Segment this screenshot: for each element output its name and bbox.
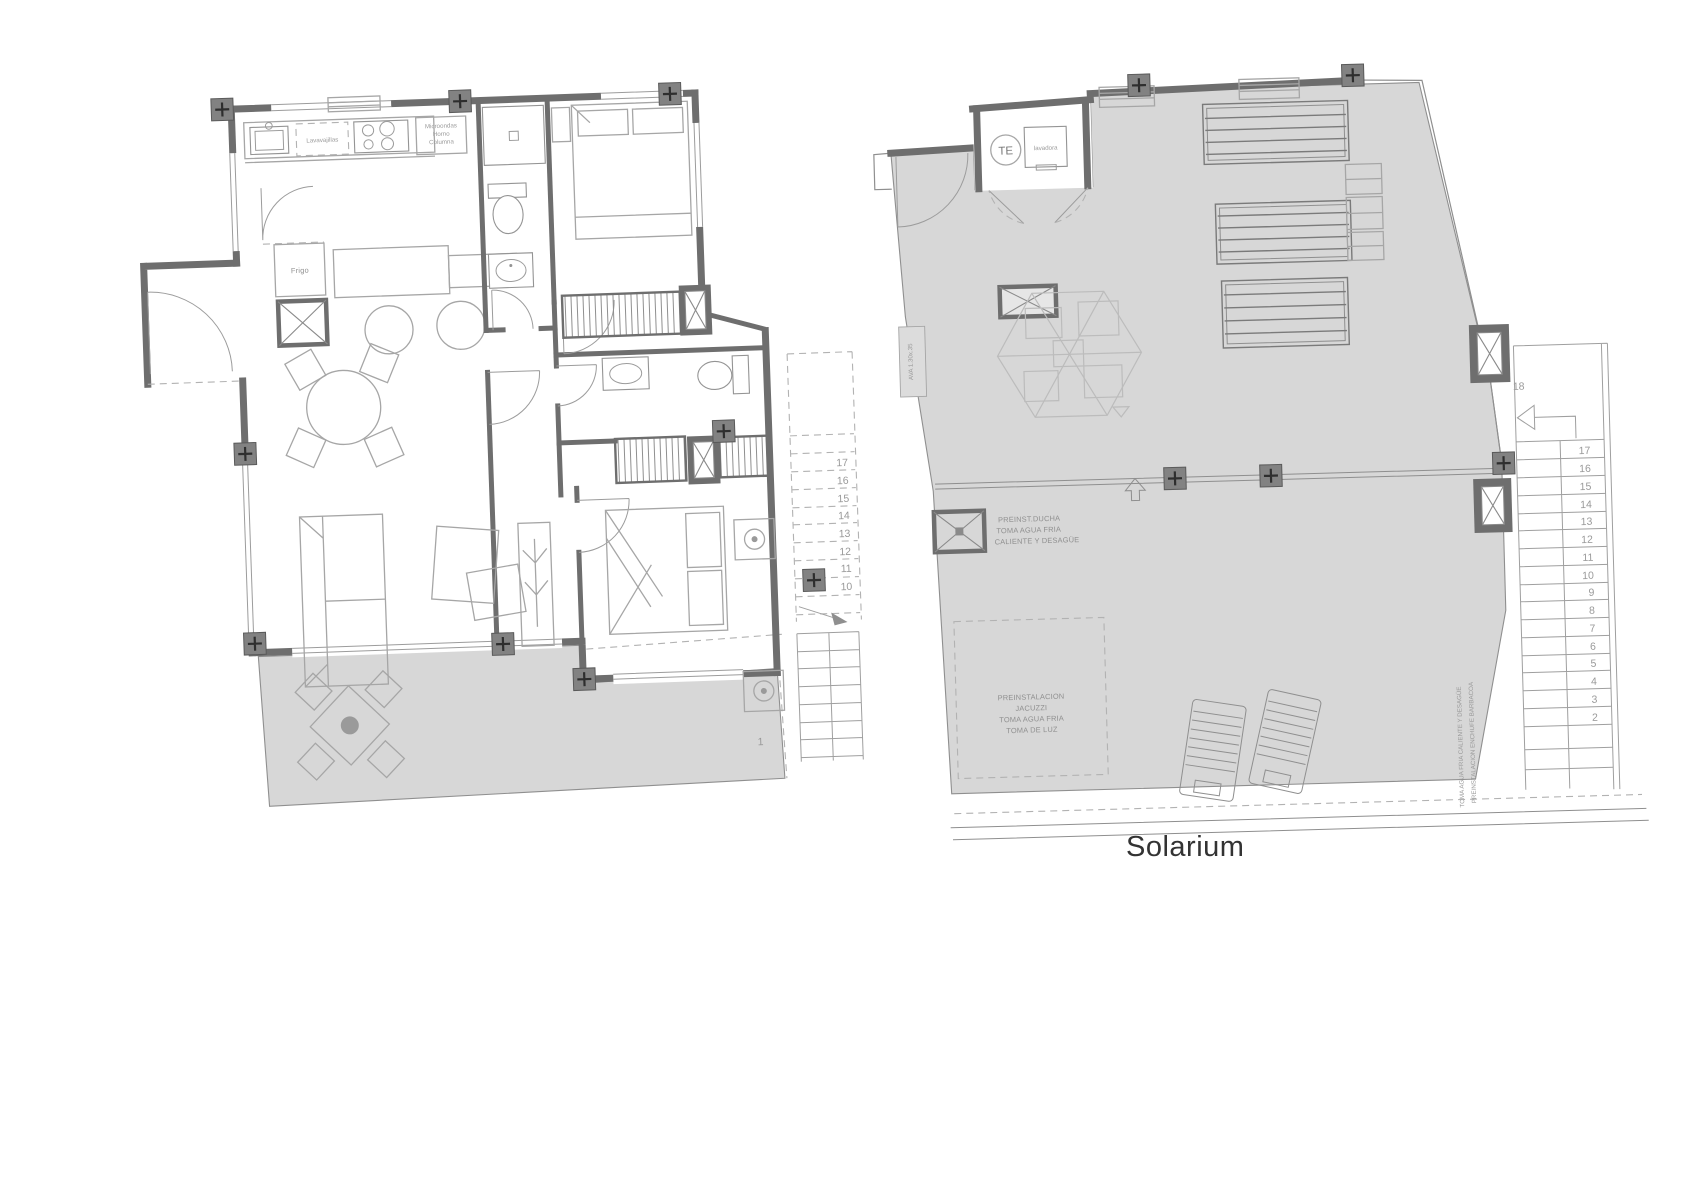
column-x-icon bbox=[1473, 478, 1512, 533]
toilet-icon bbox=[697, 355, 749, 395]
column-x-icon bbox=[1469, 324, 1511, 383]
appliance-column: Microondas Horno Columna bbox=[416, 116, 467, 155]
sink-icon bbox=[602, 357, 649, 391]
appliance-label: Columna bbox=[429, 138, 455, 146]
fridge: Frigo bbox=[274, 243, 326, 297]
stair-number: 11 bbox=[1582, 552, 1593, 564]
stool-icon bbox=[436, 300, 486, 350]
solarium-caption: Solarium bbox=[1126, 831, 1244, 864]
column-x-icon bbox=[679, 285, 713, 336]
toilet-icon bbox=[488, 183, 528, 234]
stair-number: 14 bbox=[1580, 499, 1592, 511]
wardrobe bbox=[615, 437, 686, 483]
stair-direction-arrow bbox=[1517, 404, 1576, 440]
stair-number: 6 bbox=[1590, 641, 1596, 653]
note-line: TOMA AGUA FRIA bbox=[999, 714, 1064, 725]
note-line: JACUZZI bbox=[1015, 703, 1047, 713]
floorplan-sheet: Lavavajillas Microondas Horno Columna Fr… bbox=[0, 0, 1702, 1182]
stair-number: 17 bbox=[1579, 445, 1591, 457]
stair-number: 7 bbox=[1589, 623, 1595, 635]
vent-box: AVA 1.30x.35 bbox=[899, 326, 927, 397]
chair-icon bbox=[285, 349, 326, 390]
dishwasher-label: Lavavajillas bbox=[306, 136, 338, 144]
te-label: TE bbox=[998, 145, 1013, 157]
stair-number: 8 bbox=[1589, 605, 1595, 617]
appliance-label: Microondas bbox=[425, 122, 457, 130]
bedroom-1 bbox=[551, 101, 692, 240]
stair-number: 10 bbox=[1582, 570, 1594, 582]
vent-label: AVA 1.30x.35 bbox=[907, 343, 915, 380]
stair-number: 9 bbox=[1588, 587, 1594, 599]
bathroom-2 bbox=[602, 353, 749, 398]
kitchen-counter: Lavavajillas Microondas Horno Columna bbox=[244, 115, 467, 163]
apartment-floorplan: Lavavajillas Microondas Horno Columna Fr… bbox=[122, 59, 877, 824]
nightstand bbox=[551, 107, 570, 142]
chair-icon bbox=[286, 428, 326, 468]
stair-number: 3 bbox=[1591, 694, 1597, 706]
washing-machine-icon: lavadora bbox=[1024, 126, 1067, 170]
roof-edge-lines bbox=[950, 794, 1648, 839]
stool-icon bbox=[364, 305, 414, 355]
dishwasher: Lavavajillas bbox=[296, 122, 349, 156]
duct-shaft-icon bbox=[278, 300, 328, 346]
stair-number: 15 bbox=[1580, 481, 1592, 493]
note-line: PREINST.DUCHA bbox=[998, 514, 1060, 525]
hob-icon bbox=[354, 120, 409, 153]
door-arcs bbox=[144, 176, 631, 567]
stair-number: 16 bbox=[1579, 463, 1591, 475]
fridge-label: Frigo bbox=[291, 266, 309, 276]
coffee-tables bbox=[429, 523, 526, 622]
sink-icon bbox=[250, 122, 289, 155]
note-line: PREINSTALACION bbox=[998, 692, 1065, 703]
dining-table bbox=[282, 343, 404, 470]
washer-label: lavadora bbox=[1034, 145, 1058, 153]
stair-number: 13 bbox=[1581, 516, 1593, 528]
stair-number: 1 bbox=[757, 736, 763, 748]
shower-icon bbox=[482, 105, 545, 165]
appliance-label: Horno bbox=[433, 131, 451, 139]
staircase: 17 16 15 14 13 12 11 10 9 8 7 6 5 4 3 2 bbox=[1513, 343, 1619, 791]
windows bbox=[224, 85, 743, 697]
stair-number: 5 bbox=[1590, 658, 1596, 670]
wardrobe bbox=[562, 292, 681, 338]
solarium-floorplan: TE lavadora AVA 1.30x.35 bbox=[793, 46, 1656, 909]
stair-number: 4 bbox=[1591, 676, 1597, 688]
stair-number: 12 bbox=[1581, 534, 1593, 546]
edge-step bbox=[874, 153, 892, 189]
console-plant bbox=[518, 522, 554, 646]
sink-icon bbox=[488, 253, 533, 289]
stair-number: 2 bbox=[1592, 712, 1598, 724]
terrace bbox=[258, 634, 787, 806]
bathroom-1 bbox=[482, 105, 549, 288]
note-line: TOMA DE LUZ bbox=[1006, 725, 1058, 735]
note-line: TOMA AGUA FRIA bbox=[996, 525, 1061, 536]
